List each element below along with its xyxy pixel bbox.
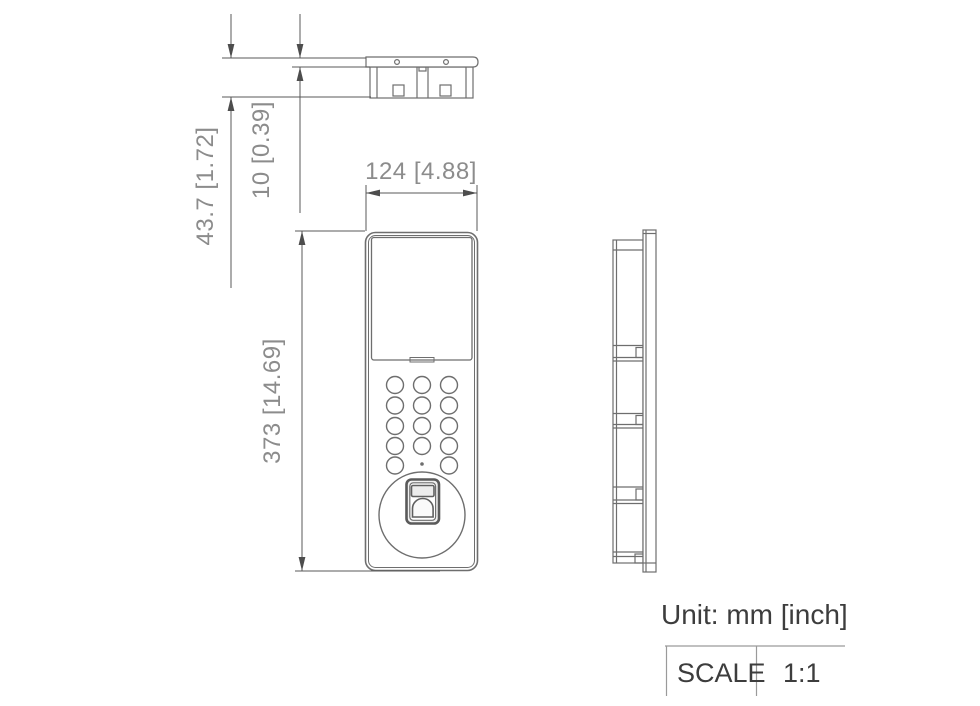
keypad-key [441, 377, 458, 394]
scanner-dome [413, 499, 434, 518]
led-indicator [420, 462, 424, 466]
keypad-key [441, 397, 458, 414]
arrow-down-icon [297, 44, 304, 58]
top-view-panel [366, 57, 478, 67]
keypad [387, 377, 458, 475]
footer: Unit: mm [inch] SCALE 1:1 [661, 599, 848, 696]
arrow-up-icon [228, 97, 235, 111]
side-view-band-bottom [613, 552, 645, 563]
top-view [366, 57, 478, 98]
fingerprint-scanner [407, 480, 440, 524]
arrow-down-icon [299, 557, 306, 571]
side-view-band [613, 346, 644, 362]
top-view-body [370, 67, 473, 98]
keypad-key [441, 457, 458, 474]
keypad-key [414, 438, 431, 455]
front-view [366, 233, 478, 571]
keypad-key [414, 397, 431, 414]
keypad-key [387, 457, 404, 474]
side-view-band [613, 414, 644, 429]
arrow-down-icon [228, 44, 235, 58]
arrow-up-icon [297, 67, 304, 81]
arrow-up-icon [299, 231, 306, 245]
side-view [613, 230, 656, 572]
side-view-body [613, 240, 643, 563]
unit-note: Unit: mm [inch] [661, 599, 848, 630]
dimension-panel-thickness-label: 10 [0.39] [248, 101, 275, 199]
scale-table-value: 1:1 [783, 658, 821, 688]
keypad-key [414, 377, 431, 394]
side-view-band [613, 487, 645, 504]
dimension-drawing: 43.7 [1.72] 10 [0.39] 124 [4.88] 373 [14… [0, 0, 980, 706]
dimension-width-label: 124 [4.88] [365, 158, 477, 185]
dimension-depth-label: 43.7 [1.72] [192, 127, 219, 246]
keypad-key [441, 438, 458, 455]
side-view-panel [643, 230, 656, 572]
keypad-key [387, 397, 404, 414]
scanner-top-band [412, 486, 435, 497]
arrow-left-icon [366, 190, 380, 197]
keypad-key [387, 377, 404, 394]
scale-table-header: SCALE [677, 658, 766, 688]
keypad-key [414, 418, 431, 435]
top-view-cutout-right [440, 85, 451, 96]
keypad-key [387, 418, 404, 435]
arrow-right-icon [463, 190, 477, 197]
keypad-key [387, 438, 404, 455]
screen [372, 238, 473, 361]
top-view-cutout-left [393, 85, 404, 96]
keypad-key [441, 418, 458, 435]
dimension-height-label: 373 [14.69] [259, 338, 286, 464]
